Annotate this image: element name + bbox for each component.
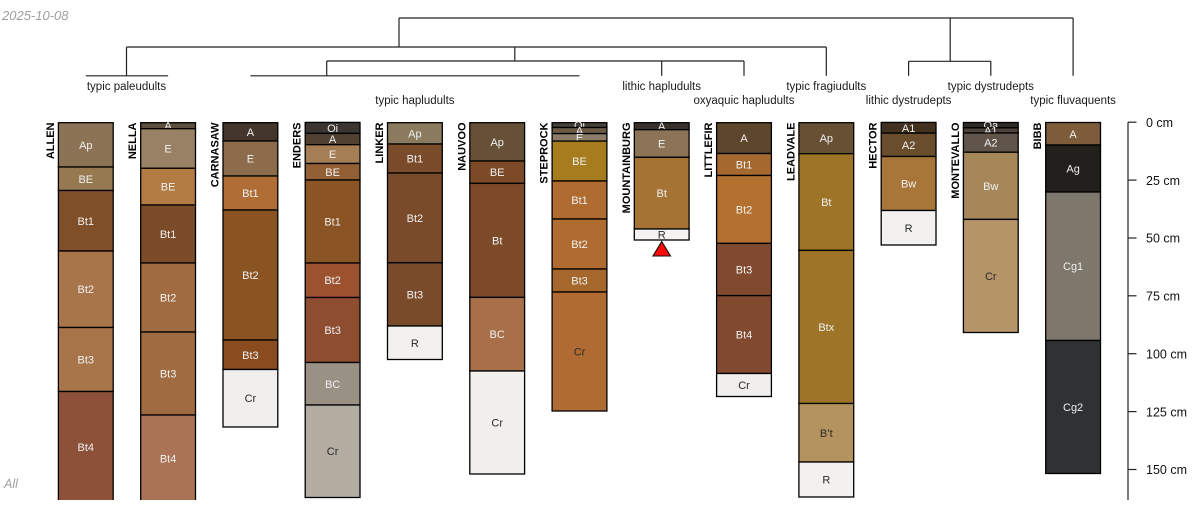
svg-text:All: All <box>3 477 19 491</box>
svg-text:Bw: Bw <box>983 181 998 193</box>
svg-text:Bt1: Bt1 <box>78 216 95 228</box>
svg-text:BE: BE <box>161 182 176 194</box>
svg-text:Bt1: Bt1 <box>324 217 341 229</box>
svg-text:BC: BC <box>490 329 505 341</box>
svg-text:Ap: Ap <box>490 137 503 149</box>
svg-text:Cg2: Cg2 <box>1063 402 1083 414</box>
svg-text:A2: A2 <box>984 138 997 150</box>
svg-text:Bt2: Bt2 <box>324 275 341 287</box>
svg-text:Bt: Bt <box>821 197 831 209</box>
svg-text:Bt2: Bt2 <box>407 213 424 225</box>
svg-text:Cr: Cr <box>245 393 257 405</box>
svg-text:Bt3: Bt3 <box>324 325 341 337</box>
svg-text:Bt3: Bt3 <box>160 369 177 381</box>
svg-text:BIBB: BIBB <box>1032 122 1044 149</box>
svg-text:E: E <box>329 149 336 161</box>
svg-text:lithic dystrudepts: lithic dystrudepts <box>866 95 952 107</box>
svg-text:typic fragiudults: typic fragiudults <box>786 81 866 93</box>
svg-text:LINKER: LINKER <box>374 122 386 163</box>
svg-text:Bt3: Bt3 <box>571 276 588 288</box>
svg-text:typic paleudults: typic paleudults <box>87 81 167 93</box>
svg-text:Bt2: Bt2 <box>571 239 588 251</box>
svg-text:BE: BE <box>572 156 587 168</box>
svg-text:typic hapludults: typic hapludults <box>375 95 455 107</box>
svg-text:Bt4: Bt4 <box>736 330 753 342</box>
svg-text:Bt3: Bt3 <box>736 265 753 277</box>
svg-text:R: R <box>905 223 913 235</box>
svg-text:MONTEVALLO: MONTEVALLO <box>950 122 962 199</box>
svg-text:Cr: Cr <box>574 347 586 359</box>
svg-text:oxyaquic hapludults: oxyaquic hapludults <box>693 95 794 107</box>
svg-text:Btx: Btx <box>818 322 834 334</box>
svg-text:Ap: Ap <box>79 140 92 152</box>
svg-text:75 cm: 75 cm <box>1146 290 1180 304</box>
svg-text:E: E <box>658 139 665 151</box>
svg-text:Bt1: Bt1 <box>407 154 424 166</box>
svg-text:Bt2: Bt2 <box>736 204 753 216</box>
svg-text:Bt1: Bt1 <box>242 188 259 200</box>
svg-text:MOUNTAINBURG: MOUNTAINBURG <box>621 123 633 214</box>
svg-text:2025-10-08: 2025-10-08 <box>1 8 69 23</box>
svg-text:50 cm: 50 cm <box>1146 232 1180 246</box>
svg-text:Cr: Cr <box>738 380 750 392</box>
svg-text:Cg1: Cg1 <box>1063 261 1083 273</box>
svg-text:A: A <box>740 133 748 145</box>
svg-text:ENDERS: ENDERS <box>292 123 304 169</box>
svg-text:E: E <box>247 154 254 166</box>
svg-text:Bt2: Bt2 <box>78 284 95 296</box>
svg-text:Bt: Bt <box>492 235 502 247</box>
svg-text:BE: BE <box>78 174 93 186</box>
svg-text:A: A <box>247 127 255 139</box>
svg-text:Bt2: Bt2 <box>160 293 177 305</box>
svg-text:Bt1: Bt1 <box>736 160 753 172</box>
svg-text:CARNASAW: CARNASAW <box>210 122 222 187</box>
svg-text:Cr: Cr <box>985 271 997 283</box>
svg-text:HECTOR: HECTOR <box>868 122 880 168</box>
svg-text:A2: A2 <box>902 140 915 152</box>
svg-text:R: R <box>822 475 830 487</box>
svg-text:Bt3: Bt3 <box>78 355 95 367</box>
svg-text:125 cm: 125 cm <box>1146 405 1187 419</box>
svg-text:R: R <box>411 338 419 350</box>
svg-text:R: R <box>658 230 666 242</box>
svg-text:0 cm: 0 cm <box>1146 116 1173 130</box>
svg-text:lithic hapludults: lithic hapludults <box>622 81 701 93</box>
svg-text:Ag: Ag <box>1066 164 1079 176</box>
svg-text:typic fluvaquents: typic fluvaquents <box>1030 95 1116 107</box>
svg-text:100 cm: 100 cm <box>1146 347 1187 361</box>
svg-text:25 cm: 25 cm <box>1146 174 1180 188</box>
svg-text:NAUVOO: NAUVOO <box>456 122 468 171</box>
svg-text:150 cm: 150 cm <box>1146 463 1187 477</box>
svg-text:ALLEN: ALLEN <box>45 122 57 159</box>
svg-text:B’t: B’t <box>820 428 833 440</box>
svg-text:NELLA: NELLA <box>127 122 139 159</box>
svg-text:Bw: Bw <box>901 179 916 191</box>
svg-text:LITTLEFIR: LITTLEFIR <box>703 122 715 177</box>
svg-text:BE: BE <box>325 167 340 179</box>
svg-text:E: E <box>164 144 171 156</box>
svg-text:typic dystrudepts: typic dystrudepts <box>948 81 1035 93</box>
svg-text:Cr: Cr <box>491 418 503 430</box>
svg-text:Bt: Bt <box>656 188 666 200</box>
svg-text:BC: BC <box>325 379 340 391</box>
svg-text:Cr: Cr <box>327 446 339 458</box>
svg-text:Ap: Ap <box>820 133 833 145</box>
svg-text:Ap: Ap <box>408 128 421 140</box>
svg-text:Bt4: Bt4 <box>78 442 95 454</box>
svg-text:Bt1: Bt1 <box>571 195 588 207</box>
svg-text:STEPROCK: STEPROCK <box>539 122 551 183</box>
svg-text:BE: BE <box>490 167 505 179</box>
svg-text:Bt4: Bt4 <box>160 454 177 466</box>
svg-text:Bt1: Bt1 <box>160 229 177 241</box>
svg-text:Bt3: Bt3 <box>407 289 424 301</box>
svg-text:A: A <box>1069 129 1077 141</box>
svg-text:LEADVALE: LEADVALE <box>785 123 797 181</box>
svg-text:Bt3: Bt3 <box>242 350 259 362</box>
svg-text:Bt2: Bt2 <box>242 270 259 282</box>
